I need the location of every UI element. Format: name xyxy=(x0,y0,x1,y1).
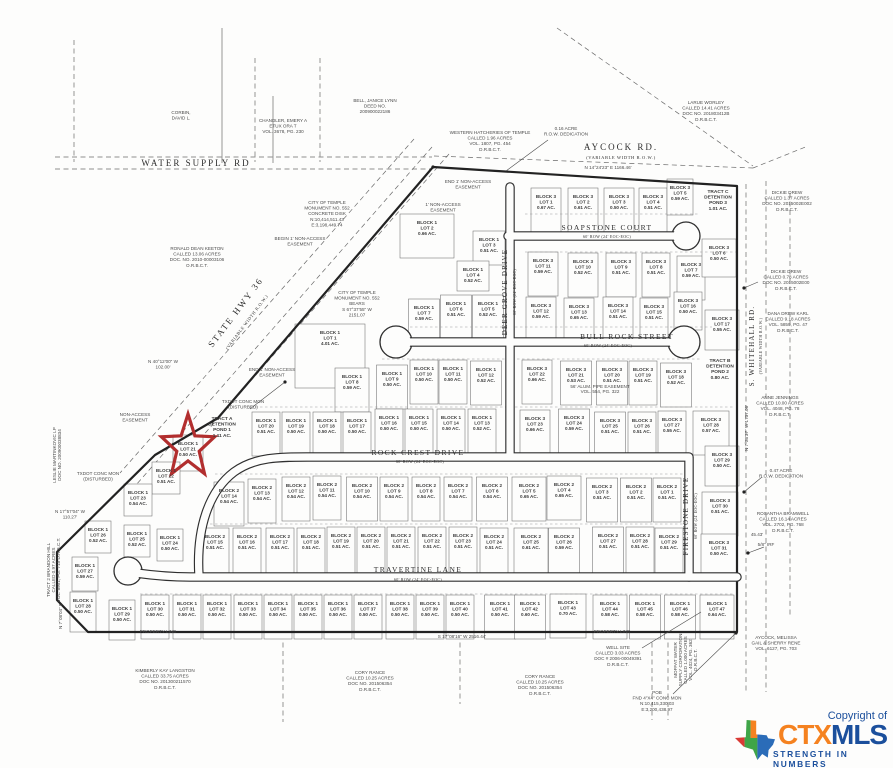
lot-label-b1-l18: BLOCK 1LOT 180.50 AC. xyxy=(317,418,338,434)
lot-label-b2-l19: BLOCK 2LOT 190.51 AC. xyxy=(331,533,352,549)
street-label: DEER GROVE DRIVE xyxy=(501,249,509,335)
parcel-annotation: N 40°12'00" W102.00' xyxy=(148,359,179,370)
lot-label-b2-l16: BLOCK 2LOT 160.51 AC. xyxy=(237,534,258,550)
lot-label-b1-l28: BLOCK 1LOT 280.50 AC. xyxy=(73,598,94,614)
texas-green-panhandle xyxy=(745,720,751,738)
texas-green-south xyxy=(745,738,758,760)
lot-label-b3-l21: BLOCK 3LOT 210.53 AC. xyxy=(566,367,587,383)
street-label: FIRESTONE DRIVE xyxy=(682,477,690,556)
parcel-annotation: BELL, JANICE LYNNDEED NO.200900022186 xyxy=(353,98,396,114)
texas-state-icon xyxy=(734,720,776,760)
tract-label: TRACT ADETENTIONPOND 11.11 AC. xyxy=(208,416,236,439)
texas-orange-panhandle xyxy=(751,720,758,738)
street-label: S. WHITEHALL RD. xyxy=(748,306,756,387)
parcel-annotation: 1' NON-ACCESSEASEMENT xyxy=(425,202,460,213)
lot-label-b3-l17: BLOCK 3LOT 170.55 AC. xyxy=(712,316,733,332)
lot-label-b2-l21: BLOCK 2LOT 210.51 AC. xyxy=(391,533,412,549)
lot-label-b1-l47: BLOCK 1LOT 470.64 AC. xyxy=(707,601,728,617)
monument-point xyxy=(734,631,737,634)
texas-red-west xyxy=(735,736,745,750)
lot-label-b1-l25: BLOCK 1LOT 250.52 AC. xyxy=(127,531,148,547)
street-label: 60' ROW (24' EOC-EOC) xyxy=(513,269,517,315)
parcel-annotation: KIMBERLY KAY LANGSTONCALLED 33.75 ACRESD… xyxy=(135,668,194,690)
lot-label-b2-l26: BLOCK 2LOT 260.59 AC. xyxy=(554,534,575,550)
monument-point xyxy=(431,165,434,168)
street-label: SOAPSTONE COURT xyxy=(561,223,652,232)
lot-label-b2-l20: BLOCK 2LOT 200.51 AC. xyxy=(361,533,382,549)
tract-label: TRACT CDETENTIONPOND 31.01 AC. xyxy=(704,189,732,212)
street-label: 60' ROW (24' EOC-EOC) xyxy=(694,493,698,539)
parcel-annotation: ROSANTHA BRAMWELLCALLED 16.14 ACRESVOL. … xyxy=(757,511,810,533)
parcel-annotation: 5/8" IRF xyxy=(758,542,775,547)
lot-label-b2-l13: BLOCK 2LOT 130.54 AC. xyxy=(252,485,273,501)
parcel-annotation: DANA DREW KARLCALLED 9.18 ACRESVOL. 5859… xyxy=(766,311,811,333)
street-label: BULL ROCK STREET xyxy=(580,332,674,341)
lot-label-b1-l24: BLOCK 1LOT 240.50 AC. xyxy=(160,535,181,551)
lot-label-b1-l39: BLOCK 1LOT 390.50 AC. xyxy=(420,601,441,617)
lot-label-b1-l11: BLOCK 1LOT 110.50 AC. xyxy=(443,366,464,382)
lot-label-b2-l10: BLOCK 2LOT 100.54 AC. xyxy=(352,483,373,499)
parcel-annotation: ANNE JENNINGSCALLED 10.00 ACRESVOL. 4048… xyxy=(756,395,804,417)
parcel-annotation: CORY RANCECALLED 10.25 ACRESDOC NO. 2015… xyxy=(516,674,564,696)
lot-label-b2-l25: BLOCK 2LOT 250.61 AC. xyxy=(521,534,542,550)
parcel-annotation: DICKIE DREWCALLED 0.78 ACRESDOC NO. 2015… xyxy=(763,269,810,291)
lot-label-b3-l14: BLOCK 3LOT 140.51 AC. xyxy=(608,303,629,319)
lot-label-b1-l15: BLOCK 1LOT 150.50 AC. xyxy=(409,415,430,431)
parcel-annotation: PROPERTY LINE xyxy=(140,629,177,634)
lot-label-b1-l43: BLOCK 1LOT 430.70 AC. xyxy=(558,600,579,616)
parcel-annotation: CORY RANCECALLED 10.25 ACRESDOC NO. 2015… xyxy=(346,670,394,692)
monument-point xyxy=(283,380,286,383)
lot-label-b1-l16: BLOCK 1LOT 160.50 AC. xyxy=(379,415,400,431)
parcel-annotation: WELL SITECALLED 3.03 ACRESDOC # 2006-000… xyxy=(594,645,642,667)
lot-label-b1-l30: BLOCK 1LOT 300.50 AC. xyxy=(145,601,166,617)
lot-label-b1-l27: BLOCK 1LOT 270.59 AC. xyxy=(75,563,96,579)
lot-label-b3-l11: BLOCK 3LOT 110.59 AC. xyxy=(533,258,554,274)
street-label: (VARIABLE WIDTH R.O.W.) xyxy=(758,317,763,374)
lot-label-b3-l13: BLOCK 3LOT 130.65 AC. xyxy=(569,304,590,320)
lot-label-b1-l38: BLOCK 1LOT 380.50 AC. xyxy=(390,601,411,617)
leader-line xyxy=(744,282,758,288)
lot-label-b3-l29: BLOCK 3LOT 290.50 AC. xyxy=(712,452,733,468)
lot-label-b3-l27: BLOCK 3LOT 270.55 AC. xyxy=(662,417,683,433)
street-label: 60' ROW (24' EOC-EOC) xyxy=(396,459,444,464)
lot-label-b1-l31: BLOCK 1LOT 310.50 AC. xyxy=(177,601,198,617)
lot-label-b1-l21: BLOCK 1LOT 210.50 AC. xyxy=(178,441,199,457)
leader-line xyxy=(744,477,762,492)
parcel-annotation: TRACT 2 BRANDON HILLCALLED 0.97 ACRESVOL… xyxy=(46,538,61,602)
lot-label-b2-l17: BLOCK 2LOT 170.51 AC. xyxy=(270,534,291,550)
parcel-annotation: S 17°08'16" W 2516.44' xyxy=(438,634,487,639)
lot-label-b1-l19: BLOCK 1LOT 190.50 AC. xyxy=(286,418,307,434)
parcel-annotation: 0.47 ACRER.O.W. DEDICATION xyxy=(759,468,803,479)
parcel-annotation: AYCOCK, MELISSAGAIL & SHERRY RENEVOL. 61… xyxy=(752,635,801,651)
street-label: ROCK CREST DRIVE xyxy=(371,448,464,457)
parcel-annotation: N 17°57'04" W110.27' xyxy=(55,509,86,520)
parcel-annotation: LESLIE MARTINKOVIC LPDOC NO. 20090003883… xyxy=(52,427,62,483)
mls-text: MLS xyxy=(831,719,887,750)
parcel-annotation: RONALD DEAN KEETONCALLED 13.06 ACRESDOC.… xyxy=(170,246,225,268)
lot-label-b1-l34: BLOCK 1LOT 340.50 AC. xyxy=(268,601,289,617)
tagline-text: STRENGTH IN NUMBERS xyxy=(773,749,893,768)
lot-label-b3-l23: BLOCK 3LOT 230.66 AC. xyxy=(525,416,546,432)
lot-label-b3-l25: BLOCK 3LOT 250.51 AC. xyxy=(600,418,621,434)
leader-line xyxy=(748,547,764,553)
lot-label-b3-l12: BLOCK 3LOT 120.59 AC. xyxy=(531,303,552,319)
lot-label-b1-l46: BLOCK 1LOT 460.58 AC. xyxy=(670,601,691,617)
lot-label-b2-l22: BLOCK 2LOT 220.51 AC. xyxy=(422,533,443,549)
tract-label: TRACT BDETENTIONPOND 20.80 AC. xyxy=(706,358,734,381)
subdivision-plat-drawing: BLOCK 1LOT 14.01 AC.BLOCK 1LOT 20.66 AC.… xyxy=(0,0,893,768)
parcel-annotation: CITY OF TEMPLEMONUMENT NO. 552CONCRETE D… xyxy=(304,200,350,227)
lot-label-b1-l12: BLOCK 1LOT 120.52 AC. xyxy=(476,367,497,383)
lot-label-b2-l24: BLOCK 2LOT 240.51 AC. xyxy=(484,534,505,550)
parcel-annotation: N 14°24'23" E 1166.46' xyxy=(584,165,631,170)
parcel-annotation: MOFFAT WATERSUPPLY CORPORATIONCALLED 1.0… xyxy=(673,634,698,687)
lot-label-b2-l15: BLOCK 2LOT 150.51 AC. xyxy=(205,534,226,550)
lot-label-b3-l18: BLOCK 3LOT 180.52 AC. xyxy=(666,369,687,385)
lot-label-b2-l12: BLOCK 2LOT 120.54 AC. xyxy=(286,483,307,499)
parcel-annotation: CORBIN,DAVID L. xyxy=(171,110,190,121)
monument-point xyxy=(742,490,745,493)
lot-label-b1-l23: BLOCK 1LOT 230.54 AC. xyxy=(128,490,149,506)
lot-label-b2-l14: BLOCK 2LOT 140.54 AC. xyxy=(219,488,240,504)
parcel-annotation: 45.43' xyxy=(751,532,763,537)
lot-label-b1-l41: BLOCK 1LOT 410.50 AC. xyxy=(490,601,511,617)
dashed-line xyxy=(753,146,808,168)
lot-label-b1-l26: BLOCK 1LOT 260.52 AC. xyxy=(88,527,109,543)
parcel-annotation: N 7°08'04" E xyxy=(58,603,63,629)
lot-label-b2-l11: BLOCK 2LOT 110.54 AC. xyxy=(317,482,338,498)
monument-point xyxy=(746,551,749,554)
parcel-annotation: WESTERN HATCHERIES OF TEMPLECALLED 1.96 … xyxy=(450,130,531,152)
lot-label-b3-l26: BLOCK 3LOT 260.51 AC. xyxy=(632,418,653,434)
lot-label-b2-l27: BLOCK 2LOT 270.51 AC. xyxy=(598,533,619,549)
lot-label-b1-l37: BLOCK 1LOT 370.50 AC. xyxy=(358,601,379,617)
lot-label-b3-l10: BLOCK 3LOT 100.52 AC. xyxy=(573,259,594,275)
parcel-annotation: LARUE WORLEYCALLED 14.41 ACRESDOC NO. 20… xyxy=(682,100,730,122)
lot-label-b1-l45: BLOCK 1LOT 450.58 AC. xyxy=(635,601,656,617)
parcel-annotation: CITY OF TEMPLEMONUMENT NO. 552BEARSS 67°… xyxy=(334,290,380,317)
lot-label-b3-l19: BLOCK 3LOT 190.51 AC. xyxy=(633,367,654,383)
lot-label-b1-l42: BLOCK 1LOT 420.60 AC. xyxy=(520,601,541,617)
street-label: 60' ROW (24' EOC-EOC) xyxy=(394,577,442,582)
street-label: (VARIABLE WIDTH R.O.W.) xyxy=(586,155,656,160)
lot-label-b1-l14: BLOCK 1LOT 140.50 AC. xyxy=(441,415,462,431)
ctx-text: CTX xyxy=(778,719,831,750)
lot-label-b1-l35: BLOCK 1LOT 350.50 AC. xyxy=(298,601,319,617)
lot-label-b1-l36: BLOCK 1LOT 360.50 AC. xyxy=(328,601,349,617)
lot-label-b1-l13: BLOCK 1LOT 130.52 AC. xyxy=(472,415,493,431)
parcel-annotation: TXDOT CONC MON(DISTURBED) xyxy=(77,471,119,482)
parcel-annotation: CHANDLER, EMERY AETUX ORA TVOL. 3678, PG… xyxy=(259,118,308,134)
lot-label-b3-l20: BLOCK 3LOT 200.51 AC. xyxy=(602,367,623,383)
lot-label-b1-l22: BLOCK 1LOT 220.51 AC. xyxy=(156,468,177,484)
lot-label-b3-l31: BLOCK 3LOT 310.50 AC. xyxy=(709,540,730,556)
lot-label-b3-l15: BLOCK 3LOT 150.51 AC. xyxy=(644,304,665,320)
lot-label-b2-l29: BLOCK 2LOT 290.51 AC. xyxy=(659,534,680,550)
plat-map-page: BLOCK 1LOT 14.01 AC.BLOCK 1LOT 20.66 AC.… xyxy=(0,0,893,768)
parcel-annotation: BEGIN 1' NON-ACCESSEASEMENT xyxy=(275,236,326,247)
parcel-annotation: END 1' NON-ACCESSEASEMENT xyxy=(445,179,491,190)
lot-label-b1-l29: BLOCK 1LOT 290.50 AC. xyxy=(112,606,133,622)
lot-label-b3-l22: BLOCK 3LOT 220.66 AC. xyxy=(527,366,548,382)
lot-label-b2-l23: BLOCK 2LOT 230.51 AC. xyxy=(453,533,474,549)
lot-label-b3-l16: BLOCK 3LOT 160.50 AC. xyxy=(678,298,699,314)
lot-label-b1-l32: BLOCK 1LOT 320.50 AC. xyxy=(207,601,228,617)
lot-label-b1-l10: BLOCK 1LOT 100.50 AC. xyxy=(414,366,435,382)
leader-line xyxy=(506,140,548,171)
parcel-annotation: PROPERTY LINE xyxy=(594,629,631,634)
parcel-annotation: TXDOT CONC MON(DISTURBED) xyxy=(222,399,264,410)
lot-label-b2-l28: BLOCK 2LOT 280.51 AC. xyxy=(630,533,651,549)
lot-label-b1-l17: BLOCK 1LOT 170.50 AC. xyxy=(347,418,368,434)
lot-label-b1-l20: BLOCK 1LOT 200.51 AC. xyxy=(256,418,277,434)
lot-label-b3-l24: BLOCK 3LOT 240.59 AC. xyxy=(564,415,585,431)
street-label: 60' ROW (24' EOC-EOC) xyxy=(583,234,631,239)
lot-label-b3-l28: BLOCK 3LOT 280.57 AC. xyxy=(701,417,722,433)
lot-label-b1-l40: BLOCK 1LOT 400.50 AC. xyxy=(450,601,471,617)
parcel-annotation: NON-ACCESSEASEMENT xyxy=(120,412,151,423)
monument-point xyxy=(742,286,745,289)
parcel-annotation: DICKIE DREWCALLED 1.37 ACRESDOC NO. 2015… xyxy=(762,190,812,212)
lot-label-b1-l33: BLOCK 1LOT 330.50 AC. xyxy=(238,601,259,617)
lot-label-b3-l30: BLOCK 3LOT 300.51 AC. xyxy=(710,498,731,514)
ctxmls-wordmark: CTXMLS xyxy=(778,719,887,751)
ctxmls-logo: Copyright of CTXMLS STRENGTH IN NUMBERS xyxy=(728,712,893,768)
parcel-annotation: N 7°28'37" W 1737.06' xyxy=(744,405,749,451)
parcel-annotation: 0.16 ACRER.O.W. DEDICATION xyxy=(544,126,588,137)
street-label: WATER SUPPLY RD xyxy=(141,158,250,168)
lot-label-b1-l44: BLOCK 1LOT 440.58 AC. xyxy=(600,601,621,617)
lot-label-b2-l18: BLOCK 2LOT 180.51 AC. xyxy=(301,534,322,550)
street-label: TRAVERTINE LANE xyxy=(374,565,463,574)
street-label: AYCOCK RD. xyxy=(584,142,658,152)
street-label: 60' ROW (24' EOC-EOC) xyxy=(584,343,632,348)
